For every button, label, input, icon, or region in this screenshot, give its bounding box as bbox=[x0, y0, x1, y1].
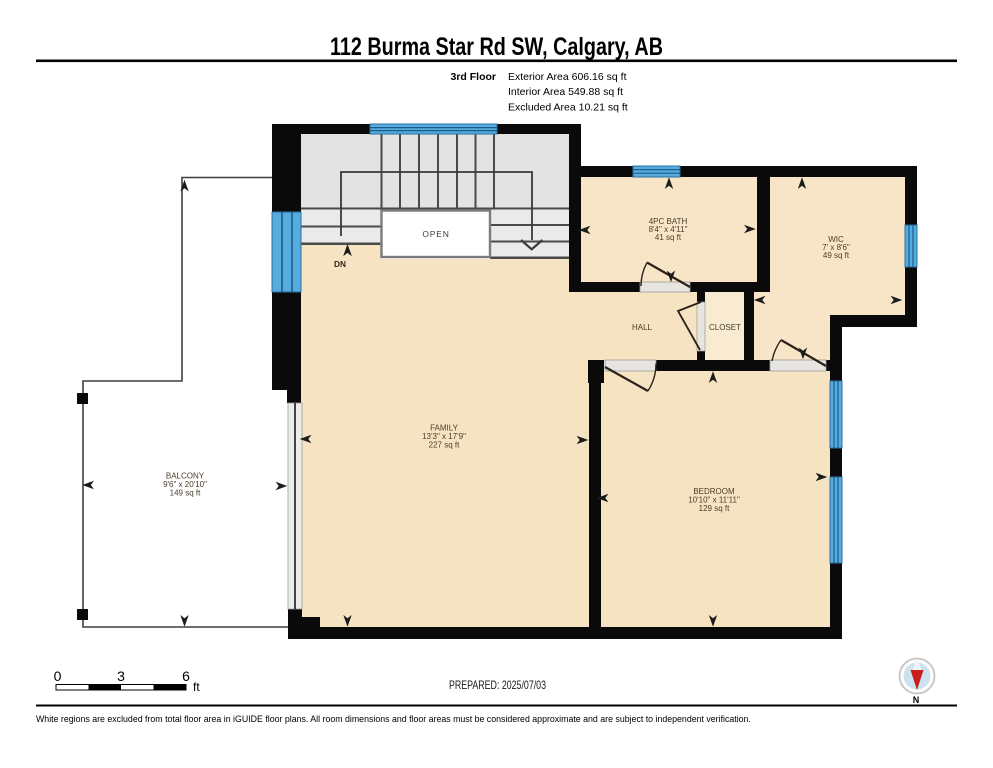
svg-text:41 sq ft: 41 sq ft bbox=[655, 233, 682, 242]
svg-text:6: 6 bbox=[182, 668, 190, 684]
svg-text:3: 3 bbox=[117, 668, 125, 684]
svg-text:PREPARED: 2025/07/03: PREPARED: 2025/07/03 bbox=[449, 678, 546, 692]
svg-text:Interior Area 549.88 sq ft: Interior Area 549.88 sq ft bbox=[508, 86, 623, 98]
svg-text:112 Burma Star Rd SW, Calgary,: 112 Burma Star Rd SW, Calgary, AB bbox=[330, 33, 663, 61]
svg-text:DN: DN bbox=[334, 259, 346, 269]
svg-text:0: 0 bbox=[54, 668, 62, 684]
svg-text:Exterior Area 606.16 sq ft: Exterior Area 606.16 sq ft bbox=[508, 71, 627, 83]
svg-text:HALL: HALL bbox=[632, 323, 653, 332]
svg-text:49 sq ft: 49 sq ft bbox=[823, 251, 850, 260]
svg-text:Excluded Area 10.21 sq ft: Excluded Area 10.21 sq ft bbox=[508, 102, 628, 114]
svg-text:ft: ft bbox=[193, 680, 200, 694]
svg-text:N: N bbox=[913, 695, 920, 705]
svg-text:OPEN: OPEN bbox=[422, 229, 449, 239]
svg-text:149 sq ft: 149 sq ft bbox=[170, 489, 201, 498]
svg-text:CLOSET: CLOSET bbox=[709, 323, 741, 332]
svg-text:227 sq ft: 227 sq ft bbox=[429, 441, 460, 450]
svg-text:3rd Floor: 3rd Floor bbox=[450, 71, 496, 83]
svg-text:White regions are excluded fro: White regions are excluded from total fl… bbox=[36, 714, 751, 724]
svg-text:129 sq ft: 129 sq ft bbox=[699, 504, 730, 513]
